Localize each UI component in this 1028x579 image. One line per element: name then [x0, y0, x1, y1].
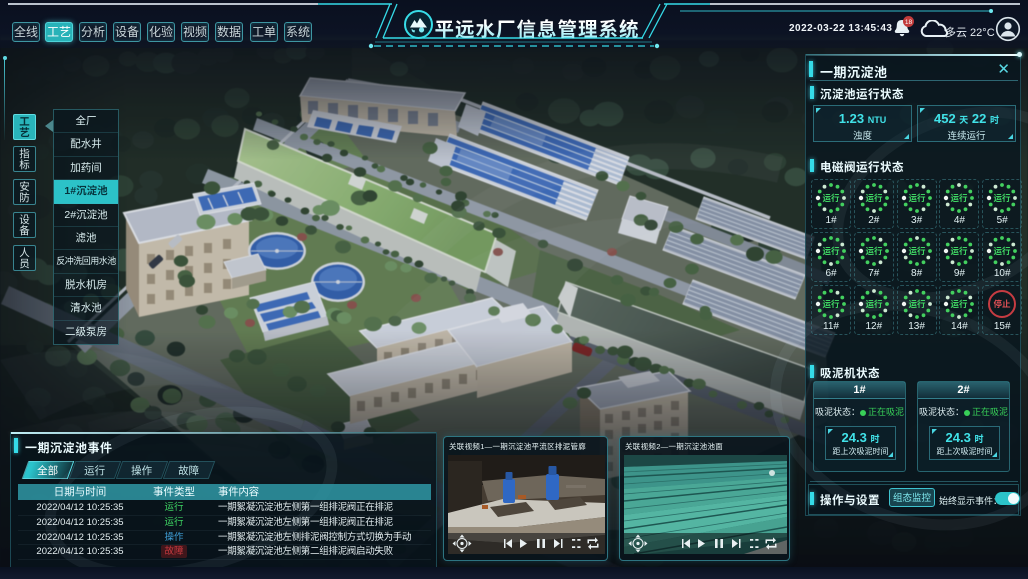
svg-text:运行: 运行 [865, 299, 883, 309]
svg-text:运行: 运行 [908, 246, 926, 256]
svg-text:运行: 运行 [994, 193, 1012, 203]
svg-text:运行: 运行 [865, 246, 883, 256]
svg-text:运行: 运行 [908, 299, 926, 309]
svg-text:运行: 运行 [822, 299, 840, 309]
svg-text:18: 18 [905, 19, 913, 26]
svg-text:运行: 运行 [994, 246, 1012, 256]
svg-text:停止: 停止 [994, 299, 1012, 309]
svg-text:运行: 运行 [951, 299, 969, 309]
svg-text:运行: 运行 [908, 193, 926, 203]
svg-text:运行: 运行 [822, 193, 840, 203]
svg-text:运行: 运行 [822, 246, 840, 256]
svg-text:运行: 运行 [865, 193, 883, 203]
svg-text:运行: 运行 [951, 246, 969, 256]
svg-text:运行: 运行 [951, 193, 969, 203]
